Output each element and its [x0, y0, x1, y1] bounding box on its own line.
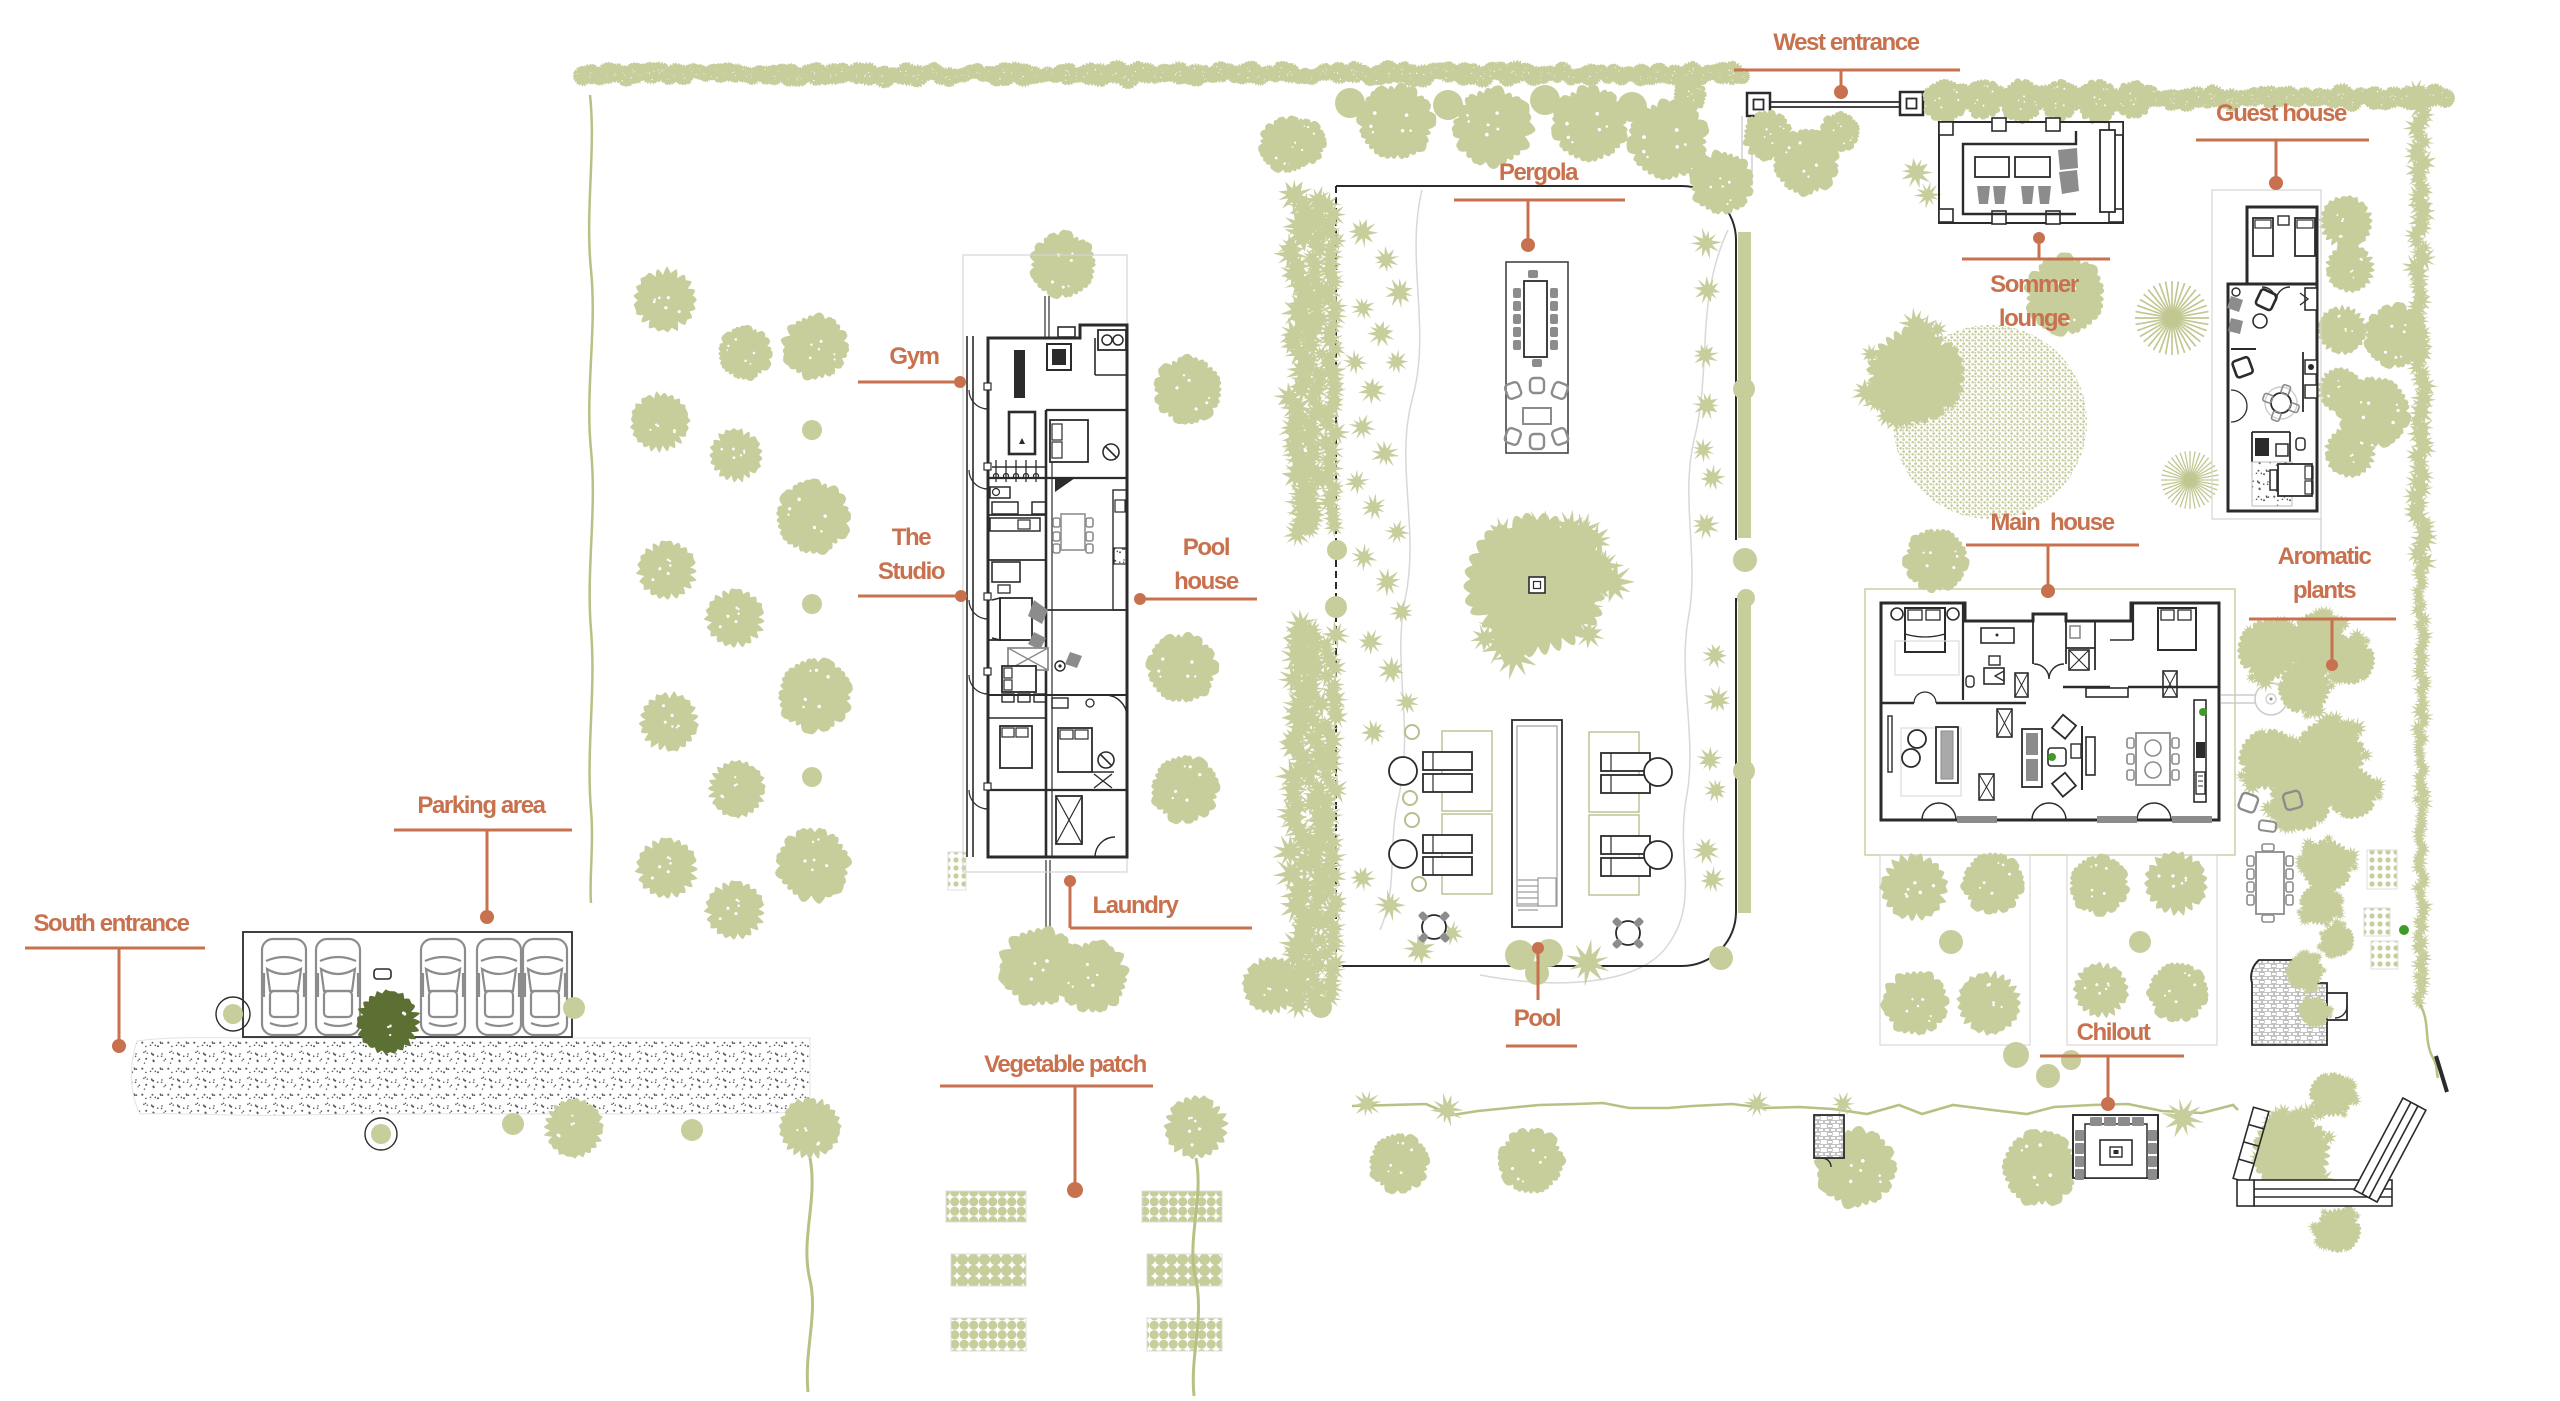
svg-text:Pergola: Pergola — [1499, 159, 1579, 186]
svg-text:Pool: Pool — [1514, 1005, 1560, 1032]
svg-text:plants: plants — [2293, 577, 2356, 604]
svg-text:South entrance: South entrance — [33, 910, 189, 937]
svg-text:Chilout: Chilout — [2077, 1019, 2151, 1046]
svg-text:The: The — [892, 524, 932, 551]
svg-text:Main house: Main house — [1990, 509, 2114, 536]
svg-text:Vegetable patch: Vegetable patch — [984, 1051, 1146, 1078]
svg-text:house: house — [1174, 568, 1239, 595]
svg-text:Aromatic: Aromatic — [2278, 543, 2372, 570]
svg-text:Laundry: Laundry — [1093, 892, 1180, 919]
svg-text:Parking area: Parking area — [417, 792, 546, 819]
svg-text:Sommer: Sommer — [1990, 271, 2079, 298]
svg-text:West entrance: West entrance — [1773, 29, 1919, 56]
svg-text:Pool: Pool — [1183, 534, 1229, 561]
svg-text:Guest house: Guest house — [2216, 100, 2347, 127]
svg-text:Gym: Gym — [889, 343, 938, 370]
svg-text:Studio: Studio — [878, 558, 945, 585]
svg-text:lounge: lounge — [1999, 305, 2070, 332]
